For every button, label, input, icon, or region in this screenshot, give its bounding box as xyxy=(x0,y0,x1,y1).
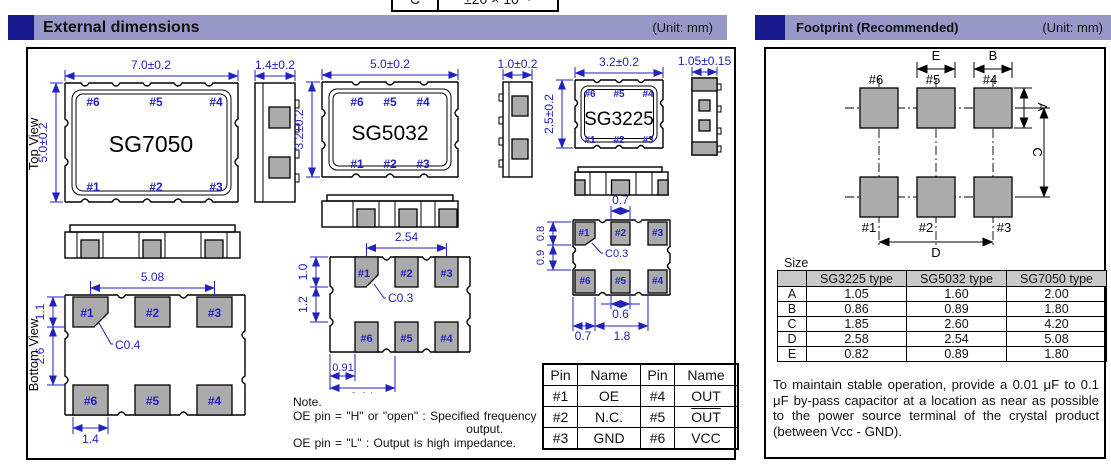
sg3225-pad-label: #5 xyxy=(615,276,627,287)
footprint-size-table: SG3225 type SG5032 type SG7050 type A 1.… xyxy=(777,270,1107,362)
pin-table-row: #3 GND #6 VCC xyxy=(543,428,738,450)
footprint-pad-label: #2 xyxy=(919,220,933,235)
sg3225-pad-gap-dim: 0.9 xyxy=(535,250,547,265)
sg3225-pad-height-dim: 0.8 xyxy=(535,226,547,241)
sg5032-width-dim: 5.0±0.2 xyxy=(370,57,410,71)
sg5032-bottom-view: #1 #2 #3 #6 #5 #4 2.54 1.0 1.2 C0.3 0.91… xyxy=(296,230,470,405)
pin-table-row: #1 OE #4 OUT xyxy=(543,386,738,407)
sg5032-thickness-dim: 1.0±0.2 xyxy=(498,57,538,71)
note-line: OE pin = "H" or "open" : Specified frequ… xyxy=(293,410,545,424)
size-value: 2.00 xyxy=(1007,287,1107,302)
footprint-title: Footprint (Recommended) xyxy=(796,20,959,35)
datasheet-page: { "clipped_table": {"col1": "C", "col2":… xyxy=(0,0,1111,465)
size-value: 2.54 xyxy=(907,332,1007,347)
sg5032-pin-label: #4 xyxy=(416,95,430,109)
sg3225-pad-label: #2 xyxy=(615,228,627,239)
sg7050-width-dim: 7.0±0.2 xyxy=(131,58,171,72)
sg3225-pin-label: #5 xyxy=(613,89,625,100)
external-dimensions-unit: (Unit: mm) xyxy=(652,20,713,35)
sg5032-pin-label: #5 xyxy=(383,95,397,109)
sg3225-top-view: #6 #5 #4 #1 #2 #3 SG3225 xyxy=(575,80,663,148)
sg5032-top-view: #6 #5 #4 #1 #2 #3 SG5032 xyxy=(322,82,458,177)
size-value: 0.82 xyxy=(807,347,907,362)
sg5032-pad-label: #4 xyxy=(440,333,453,345)
footprint-pad-label: #3 xyxy=(997,220,1011,235)
sg3225-bottom-view: #1 #2 #3 #6 #5 #4 0.7 0.8 0.9 C0.3 0.6 0… xyxy=(535,193,670,343)
sg3225-pin-label: #6 xyxy=(584,89,596,100)
size-row-label: A xyxy=(778,287,807,302)
sg5032-height-dim: 3.2±0.2 xyxy=(292,109,306,149)
bottom-view-label: Bottom View xyxy=(26,318,41,391)
footprint-header: Footprint (Recommended) (Unit: mm) xyxy=(755,15,1111,40)
clipped-spec-table: C ±20 × 10⁻⁶ xyxy=(391,0,559,12)
sg3225-part-name: SG3225 xyxy=(584,109,654,130)
top-view-label: Top View xyxy=(26,117,41,170)
sg7050-dimensions: 7.0±0.2 5.0±0.2 1.4±0.2 xyxy=(36,58,295,202)
sg7050-pad-label: #3 xyxy=(208,306,222,320)
sg3225-pin-label: #2 xyxy=(613,135,625,146)
pin-name: N.C. xyxy=(578,407,641,428)
pin-name: VCC xyxy=(675,428,739,450)
sg5032-pad-label: #6 xyxy=(360,333,372,345)
footprint-pad-label: #6 xyxy=(869,72,883,87)
size-row-label: E xyxy=(778,347,807,362)
clipped-spec-value: ±20 × 10⁻⁶ xyxy=(439,0,557,10)
sg5032-pad-label: #2 xyxy=(400,268,412,280)
pin-table-header: Pin xyxy=(543,364,578,386)
header-accent-square xyxy=(8,15,34,40)
sg7050-bottom-view: #1 #2 #3 #6 #5 #4 5.08 1.1 2.6 C0.4 1.4 xyxy=(33,270,245,446)
clipped-spec-cell: C xyxy=(393,0,439,10)
footprint-pad-label: #5 xyxy=(926,72,940,87)
footprint-unit: (Unit: mm) xyxy=(1042,20,1103,35)
sg5032-pin-label: #2 xyxy=(383,157,397,171)
footprint-dim-e: E xyxy=(932,48,941,63)
size-value: 1.85 xyxy=(807,317,907,332)
pin-table-header: Pin xyxy=(641,364,675,386)
sg3225-thickness-dim: 1.05±0.15 xyxy=(678,54,732,68)
sg7050-pad-label: #2 xyxy=(146,306,160,320)
footprint-pad-label: #4 xyxy=(983,72,997,87)
size-table-header: SG5032 type xyxy=(907,271,1007,287)
sg7050-pad-width-dim: 1.4 xyxy=(82,432,99,446)
sg7050-pitch-dim: 5.08 xyxy=(141,270,165,284)
pin-number: #1 xyxy=(543,386,578,407)
pin-number: #4 xyxy=(641,386,675,407)
sg7050-pad-height-dim: 1.1 xyxy=(33,303,47,320)
note-title: Note. xyxy=(293,396,545,410)
sg5032-pad-label: #3 xyxy=(440,268,452,280)
size-table-corner xyxy=(778,271,807,287)
pin-name: OUT xyxy=(675,386,739,407)
pin-number: #5 xyxy=(641,407,675,428)
footprint-dim-d: D xyxy=(931,245,940,260)
sg3225-pad-label: #3 xyxy=(652,228,664,239)
sg7050-top-view: #6 #5 #4 #1 #2 #3 SG7050 xyxy=(65,83,238,202)
sg5032-part-name: SG5032 xyxy=(351,122,428,145)
size-value: 2.60 xyxy=(907,317,1007,332)
sg5032-front-view xyxy=(322,195,458,227)
sg3225-front-view xyxy=(575,167,668,195)
size-table-row: B 0.86 0.89 1.80 xyxy=(778,302,1107,317)
sg5032-pitch-dim: 2.54 xyxy=(395,230,419,244)
footprint-dim-c: C xyxy=(1030,147,1045,156)
note-line: OE pin = "L" : Output is high impedance. xyxy=(293,437,545,451)
sg3225-pin-label: #1 xyxy=(584,135,596,146)
note-line: output. xyxy=(293,423,545,437)
external-dimensions-title: External dimensions xyxy=(43,19,200,37)
external-dimensions-header: External dimensions (Unit: mm) xyxy=(8,15,727,40)
sg5032-chamfer-label: C0.3 xyxy=(388,291,414,305)
size-table-label: Size xyxy=(784,256,808,270)
pin-table-header: Name xyxy=(675,364,739,386)
size-row-label: D xyxy=(778,332,807,347)
size-table-row: E 0.82 0.89 1.80 xyxy=(778,347,1107,362)
sg5032-pin-label: #3 xyxy=(416,157,430,171)
sg3225-pad-label: #1 xyxy=(578,228,590,239)
size-value: 0.89 xyxy=(907,347,1007,362)
size-row-label: C xyxy=(778,317,807,332)
pin-name-table: Pin Name Pin Name #1 OE #4 OUT #2 N.C. #… xyxy=(542,363,739,450)
sg7050-pin-label: #1 xyxy=(86,180,100,194)
sg3225-pad2-width-dim: 0.7 xyxy=(612,193,629,207)
footprint-diagram: #6 #5 #4 #1 #2 #3 E B A C D xyxy=(845,48,1050,260)
footprint-pad-label: #1 xyxy=(862,220,876,235)
overline-text: OUT xyxy=(691,409,721,425)
size-value: 1.05 xyxy=(807,287,907,302)
size-value: 0.86 xyxy=(807,302,907,317)
sg5032-side-view xyxy=(499,82,532,177)
size-value: 4.20 xyxy=(1007,317,1107,332)
size-value: 1.60 xyxy=(907,287,1007,302)
footprint-dim-a: A xyxy=(1035,103,1050,112)
size-row-label: B xyxy=(778,302,807,317)
size-table-header: SG7050 type xyxy=(1007,271,1107,287)
sg3225-width-dim: 3.2±0.2 xyxy=(599,55,639,69)
sg7050-pad-label: #4 xyxy=(208,394,222,408)
pin-table-row: #2 N.C. #5 OUT xyxy=(543,407,738,428)
oe-note: Note. OE pin = "H" or "open" : Specified… xyxy=(293,396,545,450)
sg7050-pad-label: #6 xyxy=(84,394,98,408)
sg5032-pad-height-dim: 1.0 xyxy=(296,263,310,280)
sg3225-pad-label: #6 xyxy=(579,276,591,287)
sg5032-edge-offset-dim: 0.91 xyxy=(332,362,353,374)
size-value: 5.08 xyxy=(1007,332,1107,347)
sg7050-pin-label: #6 xyxy=(86,95,100,109)
pin-number: #2 xyxy=(543,407,578,428)
sg5032-pin-label: #1 xyxy=(350,157,364,171)
pin-number: #6 xyxy=(641,428,675,450)
sg7050-pin-label: #5 xyxy=(149,95,163,109)
size-value: 1.80 xyxy=(1007,302,1107,317)
bypass-capacitor-note: To maintain stable operation, provide a … xyxy=(773,377,1099,439)
pin-name-inverted-out: OUT xyxy=(675,407,739,428)
sg3225-side-view xyxy=(692,78,721,155)
sg7050-part-name: SG7050 xyxy=(109,131,193,157)
sg5032-pin-label: #6 xyxy=(350,95,364,109)
pin-number: #3 xyxy=(543,428,578,450)
sg3225-pin-label: #3 xyxy=(642,135,654,146)
sg3225-height-dim: 2.5±0.2 xyxy=(542,94,556,134)
sg7050-pad-label: #1 xyxy=(80,306,94,320)
sg7050-pin-label: #4 xyxy=(209,95,223,109)
sg3225-chamfer-label: C0.3 xyxy=(605,248,628,260)
size-value: 1.80 xyxy=(1007,347,1107,362)
sg7050-thickness-dim: 1.4±0.2 xyxy=(255,58,295,72)
size-value: 2.58 xyxy=(807,332,907,347)
size-table-header: SG3225 type xyxy=(807,271,907,287)
sg3225-pad-span-dim: 1.8 xyxy=(614,329,631,343)
sg5032-pad-label: #1 xyxy=(358,268,370,280)
size-table-row: D 2.58 2.54 5.08 xyxy=(778,332,1107,347)
pin-name: OE xyxy=(578,386,641,407)
sg5032-pad-label: #5 xyxy=(400,333,412,345)
size-value: 0.89 xyxy=(907,302,1007,317)
sg7050-pin-label: #3 xyxy=(209,180,223,194)
sg7050-pin-label: #2 xyxy=(149,180,163,194)
sg5032-pad-gap-dim: 1.2 xyxy=(296,296,310,313)
size-table-row: C 1.85 2.60 4.20 xyxy=(778,317,1107,332)
header-accent-square xyxy=(755,15,785,40)
pin-name: GND xyxy=(578,428,641,450)
sg7050-pad-label: #5 xyxy=(146,394,160,408)
pin-table-header: Name xyxy=(578,364,641,386)
sg3225-pad-label: #4 xyxy=(652,276,664,287)
size-table-row: A 1.05 1.60 2.00 xyxy=(778,287,1107,302)
sg3225-edge-offset-dim: 0.7 xyxy=(575,329,592,343)
sg3225-pin-label: #4 xyxy=(642,89,654,100)
sg3225-pad5-width-dim: 0.6 xyxy=(612,307,629,321)
sg7050-front-view xyxy=(65,225,240,258)
footprint-dim-b: B xyxy=(989,48,998,63)
sg7050-chamfer-label: C0.4 xyxy=(115,338,141,352)
